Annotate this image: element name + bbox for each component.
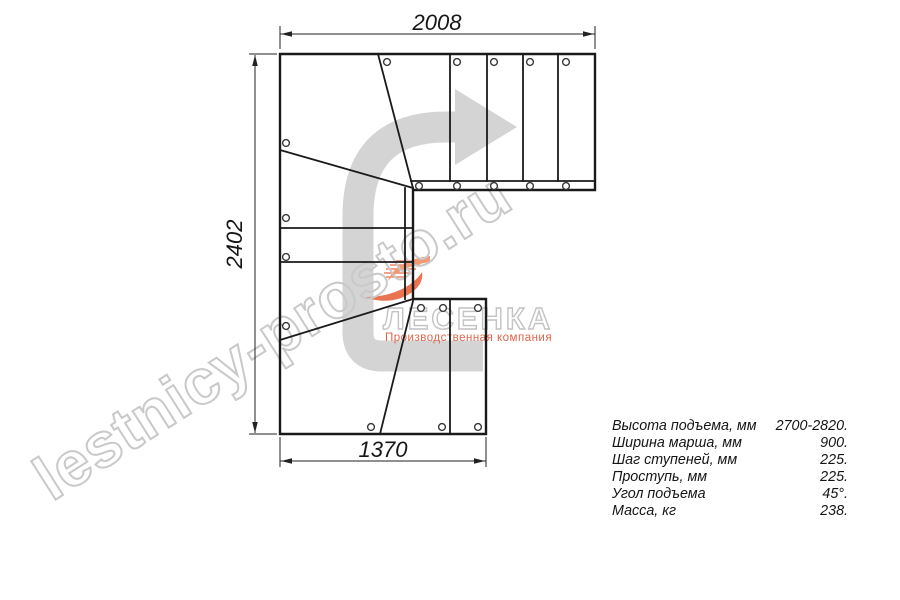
brand-tagline-watermark: Производственная компания <box>385 332 552 344</box>
spec-value: 225. <box>820 452 848 469</box>
spec-label: Ширина марша, мм <box>612 435 742 452</box>
spec-value: 225. <box>820 469 848 486</box>
spec-value: 238. <box>820 503 848 520</box>
spec-value: 45°. <box>822 486 848 503</box>
spec-row: Проступь, мм 225. <box>612 469 848 486</box>
spec-row: Угол подъема 45°. <box>612 486 848 503</box>
spec-label: Высота подъема, мм <box>612 418 757 435</box>
specs-table: Высота подъема, мм 2700-2820. Ширина мар… <box>612 418 848 519</box>
spec-row: Ширина марша, мм 900. <box>612 435 848 452</box>
dimension-top-label: 2008 <box>412 10 463 35</box>
arrowhead-icon <box>455 89 517 165</box>
spec-label: Угол подъема <box>612 486 706 503</box>
spec-row: Высота подъема, мм 2700-2820. <box>612 418 848 435</box>
spec-value: 900. <box>820 435 848 452</box>
spec-label: Масса, кг <box>612 503 676 520</box>
spec-value: 2700-2820. <box>776 418 848 435</box>
spec-row: Масса, кг 238. <box>612 503 848 520</box>
spec-label: Проступь, мм <box>612 469 707 486</box>
stair-drawing-page: ЛЕСЕНКА Производственная компания lestni… <box>0 0 900 600</box>
spec-row: Шаг ступеней, мм 225. <box>612 452 848 469</box>
dimension-left-label: 2402 <box>222 220 247 270</box>
spec-label: Шаг ступеней, мм <box>612 452 737 469</box>
dimension-bottom-label: 1370 <box>359 437 409 462</box>
